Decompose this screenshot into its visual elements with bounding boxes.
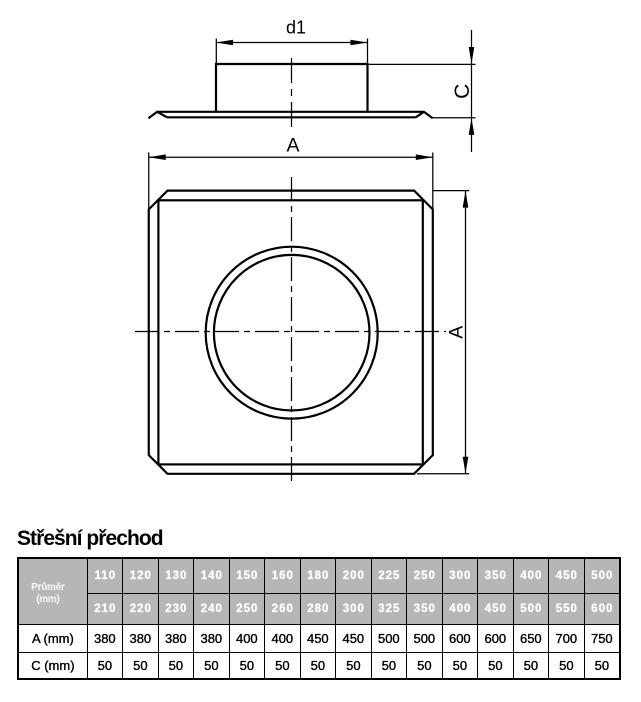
- svg-text:d1: d1: [286, 18, 306, 38]
- svg-text:A: A: [446, 326, 468, 339]
- svg-text:A: A: [286, 135, 299, 157]
- svg-text:C: C: [451, 84, 474, 99]
